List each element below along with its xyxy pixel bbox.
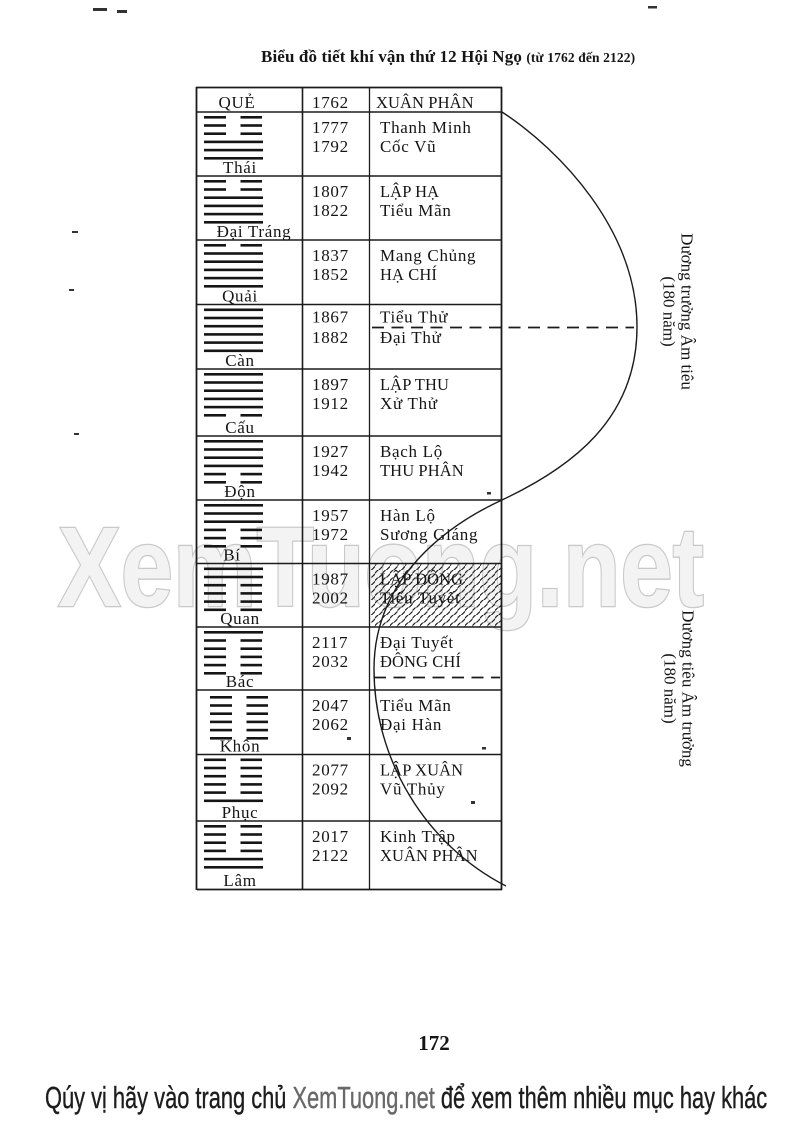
svg-text:Bí: Bí — [223, 546, 240, 565]
svg-text:Đại Tráng: Đại Tráng — [217, 222, 292, 241]
svg-text:Đại Hàn: Đại Hàn — [380, 715, 442, 734]
svg-text:LẬP XUÂN: LẬP XUÂN — [380, 761, 463, 780]
svg-text:1762: 1762 — [312, 93, 349, 112]
svg-text:1972: 1972 — [312, 525, 349, 544]
svg-text:Cấu: Cấu — [225, 418, 254, 437]
svg-text:Hàn Lộ: Hàn Lộ — [380, 506, 436, 525]
svg-text:Phục: Phục — [222, 803, 259, 822]
svg-text:(180 năm): (180 năm) — [660, 276, 679, 346]
svg-text:LẬP THU: LẬP THU — [380, 375, 449, 394]
svg-text:Dương tiêu Âm trưởng: Dương tiêu Âm trưởng — [679, 610, 698, 767]
svg-text:Khôn: Khôn — [220, 737, 261, 756]
svg-text:Thái: Thái — [223, 158, 257, 177]
svg-text:1852: 1852 — [312, 265, 349, 284]
svg-text:1867: 1867 — [312, 308, 349, 327]
svg-text:Kinh Trập: Kinh Trập — [380, 827, 456, 846]
svg-text:HẠ CHÍ: HẠ CHÍ — [380, 265, 437, 284]
svg-text:Vũ Thủy: Vũ Thủy — [380, 780, 446, 799]
svg-text:QUẺ: QUẺ — [218, 93, 255, 112]
svg-text:1927: 1927 — [312, 442, 349, 461]
svg-text:Sương Giáng: Sương Giáng — [380, 525, 478, 544]
svg-text:XUÂN PHÂN: XUÂN PHÂN — [380, 846, 478, 865]
svg-text:Xử Thử: Xử Thử — [380, 394, 438, 413]
svg-text:THU PHÂN: THU PHÂN — [380, 461, 464, 480]
svg-text:Tiểu Mãn: Tiểu Mãn — [380, 201, 452, 220]
svg-text:Dương trưởng Âm tiêu: Dương trưởng Âm tiêu — [678, 233, 697, 390]
svg-text:Mang Chủng: Mang Chủng — [380, 246, 476, 265]
svg-text:1792: 1792 — [312, 137, 349, 156]
svg-text:Càn: Càn — [225, 351, 254, 370]
svg-text:XUÂN PHÂN: XUÂN PHÂN — [376, 93, 474, 112]
svg-text:1837: 1837 — [312, 246, 349, 265]
svg-text:Lâm: Lâm — [223, 871, 256, 890]
svg-text:Quan: Quan — [220, 609, 260, 628]
svg-text:2062: 2062 — [312, 715, 349, 734]
svg-text:1957: 1957 — [312, 506, 349, 525]
svg-text:1942: 1942 — [312, 461, 349, 480]
svg-text:1897: 1897 — [312, 375, 349, 394]
svg-text:Tiểu Mãn: Tiểu Mãn — [380, 696, 452, 715]
svg-text:2047: 2047 — [312, 696, 349, 715]
svg-text:Tiểu Tuyết: Tiểu Tuyết — [380, 589, 461, 608]
svg-text:Bác: Bác — [226, 672, 255, 691]
svg-text:Cốc Vũ: Cốc Vũ — [380, 137, 436, 156]
svg-text:Độn: Độn — [224, 482, 255, 501]
svg-text:1807: 1807 — [312, 182, 349, 201]
svg-text:2077: 2077 — [312, 761, 349, 780]
svg-text:2017: 2017 — [312, 827, 349, 846]
svg-text:2117: 2117 — [312, 633, 348, 652]
svg-text:(180 năm): (180 năm) — [661, 653, 680, 723]
svg-text:LẬP ĐÔNG: LẬP ĐÔNG — [380, 570, 463, 589]
svg-text:Đại Thử: Đại Thử — [380, 328, 442, 347]
svg-text:2122: 2122 — [312, 846, 349, 865]
svg-text:Đại Tuyết: Đại Tuyết — [380, 633, 454, 652]
svg-text:Quải: Quải — [222, 287, 258, 306]
svg-text:Tiểu Thử: Tiểu Thử — [380, 308, 448, 327]
svg-text:1987: 1987 — [312, 570, 349, 589]
svg-text:1912: 1912 — [312, 394, 349, 413]
svg-text:2092: 2092 — [312, 780, 349, 799]
svg-text:Thanh Minh: Thanh Minh — [380, 118, 472, 137]
svg-text:LẬP HẠ: LẬP HẠ — [380, 182, 439, 201]
svg-text:Bạch Lộ: Bạch Lộ — [380, 442, 443, 461]
svg-text:2002: 2002 — [312, 589, 349, 608]
svg-text:1822: 1822 — [312, 201, 349, 220]
svg-text:2032: 2032 — [312, 652, 349, 671]
svg-text:1777: 1777 — [312, 118, 349, 137]
svg-text:ĐÔNG CHÍ: ĐÔNG CHÍ — [380, 652, 461, 671]
svg-text:1882: 1882 — [312, 328, 349, 347]
